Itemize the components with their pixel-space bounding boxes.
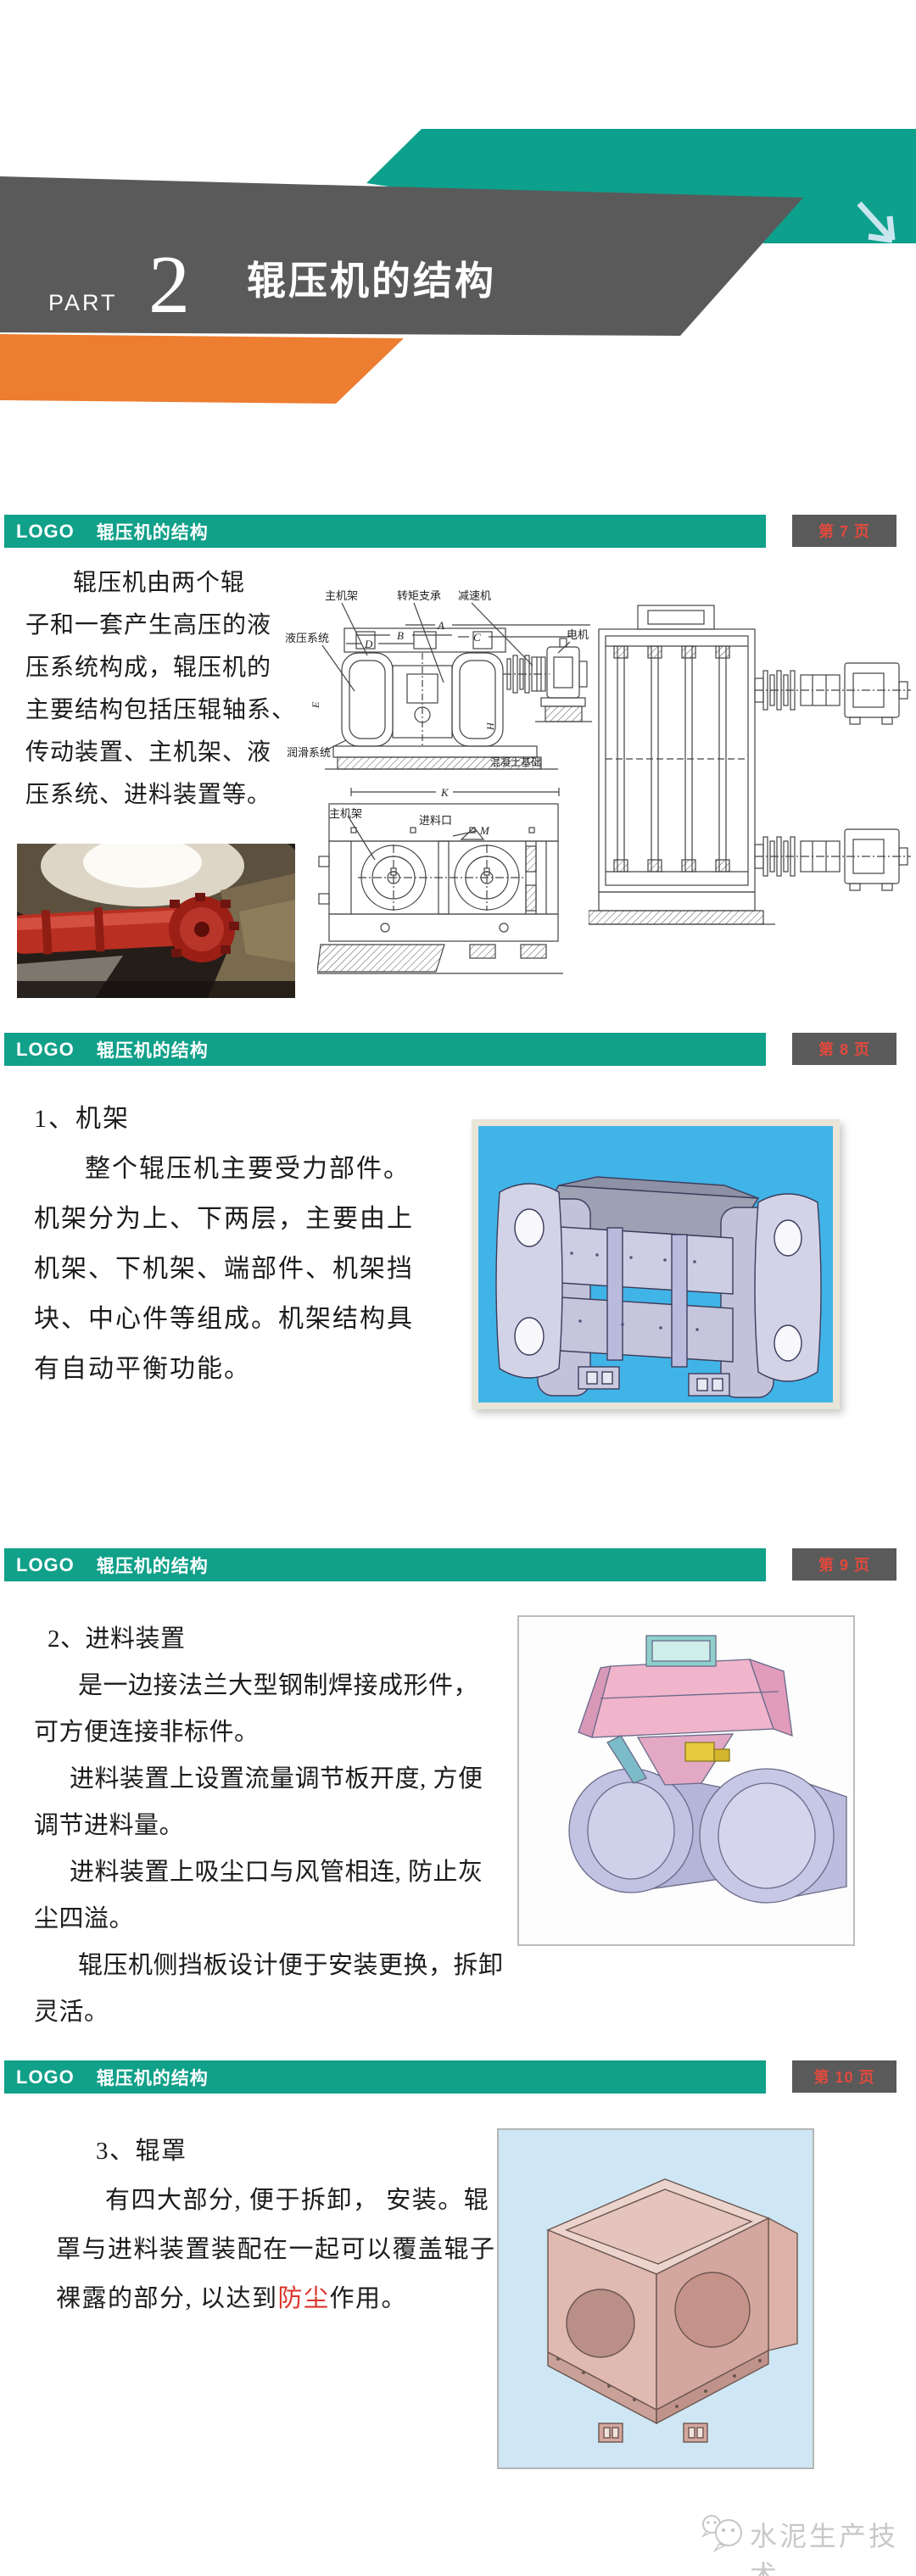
text-line: 进料装置上设置流量调节板开度, 方便 (34, 1756, 450, 1803)
slide7-page-badge: 第 7 页 (792, 515, 896, 547)
roller-cover-cad-image (497, 2128, 814, 2469)
dim-k: K (440, 786, 450, 799)
slide8-paragraph: 1、机架 整个辊压机主要受力部件。 机架分为上、下两层，主要由上 机架、下机架、… (34, 1094, 417, 1394)
text-line: 压系统构成，辊压机的 (25, 647, 295, 689)
text-line: 3、辊罩 (56, 2127, 484, 2176)
text-line: 有四大部分, 便于拆卸， 安装。辊 (56, 2176, 484, 2225)
label-feed-inlet: 进料口 (419, 814, 452, 827)
text-line: 块、中心件等组成。机架结构具 (34, 1294, 417, 1344)
roller-press-photo (17, 844, 295, 998)
text-segment: 作用。 (330, 2285, 408, 2312)
slide10-paragraph: 3、辊罩 有四大部分, 便于拆卸， 安装。辊 罩与进料装置装配在一起可以覆盖辊子… (56, 2127, 484, 2323)
feeder-cad-art (519, 1617, 853, 1944)
text-line: 可方便连接非标件。 (34, 1709, 450, 1756)
dim-a: A (437, 619, 444, 632)
slide8-header-bar: LOGO 辊压机的结构 (4, 1033, 766, 1066)
slide10-page-badge: 第 10 页 (792, 2060, 896, 2093)
footer-brand: 水泥生产技术 (750, 2515, 916, 2576)
label-hydraulic: 液压系统 (285, 632, 329, 644)
slide7-header-title: 辊压机的结构 (97, 519, 209, 544)
cover-banner: PART 2 辊压机的结构 (0, 0, 916, 407)
slide9-page-badge: 第 9 页 (792, 1548, 896, 1581)
label-reducer: 减速机 (458, 589, 491, 602)
dim-e: E (310, 701, 321, 709)
slide10-header-bar: LOGO 辊压机的结构 (4, 2060, 766, 2094)
highlight-dustproof: 防尘 (278, 2285, 330, 2312)
slide10-header-title: 辊压机的结构 (97, 2065, 209, 2090)
roller-cover-cad-art (499, 2130, 813, 2467)
label-main-frame: 主机架 (325, 589, 358, 602)
text-line: 辊压机侧挡板设计便于安装更换，拆卸 (34, 1943, 450, 1989)
dim-d: D (364, 638, 373, 650)
text-line: 机架、下机架、端部件、机架挡 (34, 1244, 417, 1294)
text-segment: 裸露的部分, 以达到 (56, 2285, 278, 2312)
label-main-frame-2: 主机架 (329, 807, 362, 820)
dim-m: M (479, 824, 490, 837)
slide9-header-bar: LOGO 辊压机的结构 (4, 1548, 766, 1581)
label-motor: 电机 (567, 628, 589, 641)
text-line: 压系统、进料装置等。 (25, 774, 295, 817)
dim-b: B (397, 629, 404, 642)
text-line: 进料装置上吸尘口与风管相连, 防止灰 (34, 1849, 450, 1896)
text-line: 1、机架 (34, 1094, 417, 1144)
cover-gray-band (0, 176, 803, 336)
logo-text: LOGO (4, 1039, 75, 1061)
roller-press-photo-art (17, 844, 295, 998)
text-line: 子和一套产生高压的液 (25, 605, 295, 647)
page: PART 2 辊压机的结构 LOGO 辊压机的结构 第 7 页 辊压机由两个辊 … (0, 0, 916, 2576)
slide9-header-title: 辊压机的结构 (97, 1553, 209, 1578)
text-line: 辊压机由两个辊 (25, 562, 295, 605)
diagram-elevation-view (589, 600, 916, 951)
diagram-plan-view: K 主机架 进料口 M (317, 778, 568, 984)
cover-orange-shape (0, 334, 404, 404)
text-line: 灵活。 (34, 1989, 450, 2036)
dim-c: C (473, 631, 481, 644)
label-lubrication: 润滑系统 (287, 746, 331, 759)
text-line: 调节进料量。 (34, 1803, 450, 1849)
frame-cad-image (472, 1119, 840, 1409)
text-line: 是一边接法兰大型钢制焊接成形件， (34, 1663, 450, 1709)
logo-text: LOGO (4, 2066, 75, 2088)
text-line: 机架分为上、下两层，主要由上 (34, 1194, 417, 1244)
text-line: 有自动平衡功能。 (34, 1344, 417, 1394)
label-torque-support: 转矩支承 (397, 589, 441, 602)
logo-text: LOGO (4, 521, 75, 543)
cover-part-label: PART (48, 290, 118, 315)
text-line: 传动装置、主机架、液 (25, 732, 295, 774)
feeder-cad-image (517, 1615, 855, 1946)
slide8-header-title: 辊压机的结构 (97, 1037, 209, 1062)
text-line: 尘四溢。 (34, 1896, 450, 1943)
slide7-header-bar: LOGO 辊压机的结构 (4, 515, 766, 548)
wechat-icon (699, 2512, 746, 2552)
cover-part-number: 2 (148, 239, 190, 331)
slide8-page-badge: 第 8 页 (792, 1033, 896, 1065)
text-line: 整个辊压机主要受力部件。 (34, 1144, 417, 1194)
text-line: 主要结构包括压辊轴系、 (25, 689, 295, 732)
logo-text: LOGO (4, 1554, 75, 1576)
text-line: 罩与进料装置装配在一起可以覆盖辊子 (56, 2225, 484, 2274)
slide7-paragraph: 辊压机由两个辊 子和一套产生高压的液 压系统构成，辊压机的 主要结构包括压辊轴系… (25, 562, 295, 817)
slide9-paragraph: 2、进料装置 是一边接法兰大型钢制焊接成形件， 可方便连接非标件。 进料装置上设… (34, 1616, 450, 2036)
diagram-side-view: 主机架 液压系统 转矩支承 减速机 电机 润滑系统 混凝土基础 A B C D … (278, 547, 594, 778)
frame-cad-art (478, 1126, 833, 1402)
text-line: 裸露的部分, 以达到防尘作用。 (56, 2274, 484, 2323)
label-foundation: 混凝土基础 (490, 756, 541, 768)
cover-title: 辊压机的结构 (247, 259, 496, 303)
text-line: 2、进料装置 (34, 1616, 450, 1663)
dim-h: H (484, 722, 496, 731)
